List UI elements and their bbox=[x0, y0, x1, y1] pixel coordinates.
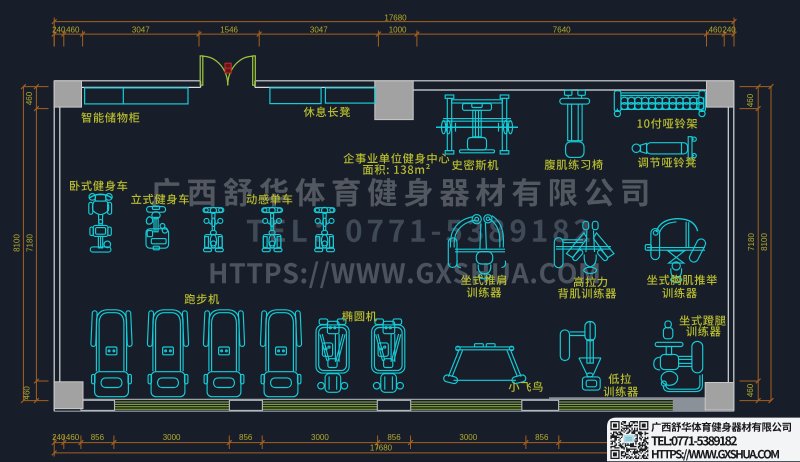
svg-text:7640: 7640 bbox=[553, 25, 571, 34]
svg-text:460: 460 bbox=[66, 25, 80, 34]
svg-text:8100: 8100 bbox=[12, 234, 21, 252]
svg-text:460: 460 bbox=[709, 25, 723, 34]
svg-text:460: 460 bbox=[746, 383, 755, 397]
svg-text:1546: 1546 bbox=[220, 25, 238, 34]
svg-text:17680: 17680 bbox=[370, 443, 393, 452]
svg-text:856: 856 bbox=[535, 433, 549, 442]
svg-text:7180: 7180 bbox=[25, 234, 34, 252]
svg-text:3000: 3000 bbox=[163, 433, 181, 442]
svg-text:240: 240 bbox=[52, 433, 66, 442]
svg-text:3000: 3000 bbox=[311, 433, 329, 442]
svg-text:8100: 8100 bbox=[760, 233, 769, 251]
svg-text:856: 856 bbox=[91, 433, 105, 442]
svg-text:3047: 3047 bbox=[310, 25, 328, 34]
svg-text:3000: 3000 bbox=[459, 433, 477, 442]
svg-text:856: 856 bbox=[387, 433, 401, 442]
svg-text:856: 856 bbox=[239, 433, 253, 442]
svg-text:240: 240 bbox=[722, 25, 736, 34]
svg-text:460: 460 bbox=[66, 433, 80, 442]
svg-text:240: 240 bbox=[52, 25, 66, 34]
svg-text:460: 460 bbox=[22, 386, 31, 400]
svg-text:1000: 1000 bbox=[389, 25, 407, 34]
svg-text:3047: 3047 bbox=[132, 25, 150, 34]
svg-text:17680: 17680 bbox=[384, 14, 407, 23]
svg-text:460: 460 bbox=[25, 91, 34, 105]
svg-text:460: 460 bbox=[746, 93, 755, 107]
svg-text:7180: 7180 bbox=[747, 233, 756, 251]
